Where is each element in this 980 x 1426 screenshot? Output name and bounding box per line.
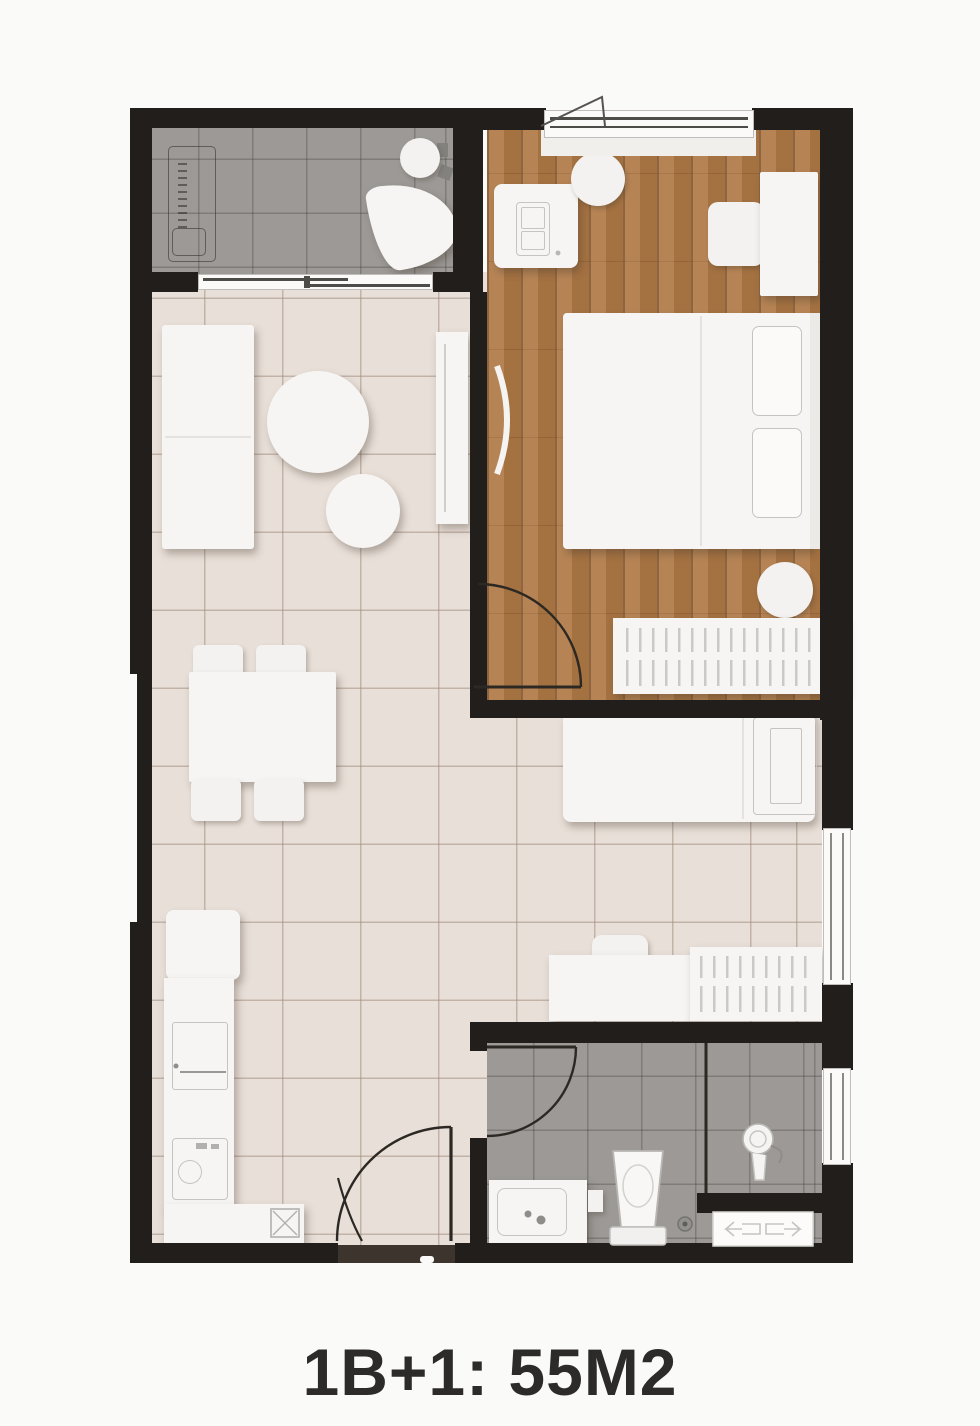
round-rug xyxy=(757,562,813,618)
wall-left-middle xyxy=(137,674,152,922)
coffee-table-large xyxy=(267,371,369,473)
side-frame-inner xyxy=(770,728,802,804)
laptop-keyboard xyxy=(521,231,545,250)
entry-threshold-notch xyxy=(420,1256,434,1263)
round-basin xyxy=(400,138,440,178)
tv-console xyxy=(436,332,468,524)
wall-bedroom-bottom xyxy=(470,700,853,718)
sink-bowl xyxy=(178,1160,202,1184)
wall-top-left xyxy=(130,108,470,128)
soap-dish xyxy=(588,1190,603,1212)
kitchen-counter-horizontal xyxy=(164,1204,304,1245)
wall-left-lower xyxy=(130,922,152,1263)
wall-right-mid-a xyxy=(822,718,853,830)
washing-machine-label-marks xyxy=(178,158,187,228)
fridge xyxy=(166,910,240,980)
sliding-door-track xyxy=(306,284,430,287)
pillow xyxy=(752,326,802,416)
floor-plan-image: 1B+1: 55M2 xyxy=(0,0,980,1426)
wall-bathroom-left-stub xyxy=(470,1043,487,1051)
bedroom-window xyxy=(544,110,754,138)
slider-post-right xyxy=(433,272,483,292)
small-wardrobe-hangers xyxy=(700,956,812,978)
wall-right-upper xyxy=(820,108,853,720)
bedroom-window-track xyxy=(550,126,748,128)
dresser xyxy=(760,172,818,296)
wardrobe-hangers xyxy=(626,660,832,686)
sliding-door-track xyxy=(203,278,348,281)
shower-ledge xyxy=(697,1193,823,1213)
study-window-frame xyxy=(842,833,844,980)
bedroom-stool xyxy=(571,152,625,206)
wall-top-bedroom-a xyxy=(470,108,546,130)
wall-utility-right-column xyxy=(453,108,483,292)
sliding-door-tick xyxy=(304,276,310,288)
dining-chair xyxy=(254,779,304,821)
pillow xyxy=(752,428,802,518)
study-window-frame xyxy=(830,833,832,980)
wall-bedroom-left xyxy=(470,292,487,702)
unit-title: 1B+1: 55M2 xyxy=(0,1334,980,1410)
sofa-seam xyxy=(165,436,251,438)
vanity-sink xyxy=(497,1188,567,1236)
bed-seam xyxy=(700,316,702,546)
slider-post-left xyxy=(152,272,198,292)
dining-table xyxy=(189,672,336,782)
dining-chair xyxy=(191,779,241,821)
bathroom-window-frame xyxy=(842,1073,844,1160)
coffee-table-small xyxy=(326,474,400,548)
study-desk xyxy=(549,955,691,1021)
study-window xyxy=(823,828,851,985)
single-bed-seam xyxy=(742,715,744,819)
wall-bathroom-top xyxy=(470,1022,853,1043)
tv-console-line xyxy=(444,344,446,512)
wall-bottom-right xyxy=(455,1243,853,1263)
bedroom-window-track xyxy=(550,117,748,120)
small-wardrobe-hangers xyxy=(700,986,812,1012)
living-sliding-door xyxy=(198,274,433,290)
bathroom-window xyxy=(823,1068,851,1165)
entry-threshold xyxy=(338,1245,455,1263)
laundry-tub-outline xyxy=(172,228,206,256)
laptop-screen xyxy=(521,207,545,229)
cabinet-outline xyxy=(172,1022,228,1090)
wall-bottom-left xyxy=(130,1243,338,1263)
nightstand xyxy=(708,202,764,266)
wall-left-upper xyxy=(130,108,152,674)
wardrobe-hangers xyxy=(626,628,832,652)
bathroom-window-frame xyxy=(830,1073,832,1160)
